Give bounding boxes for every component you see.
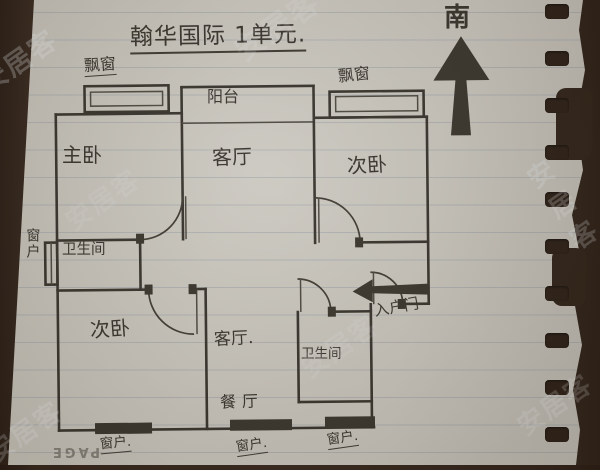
wall-bath2-left (298, 312, 299, 402)
wall-bedroom2-south (360, 242, 428, 243)
window-bottom-1 (95, 423, 152, 435)
bay-window-right (330, 91, 424, 118)
label-second-bedroom-top: 次卧 (346, 153, 387, 177)
door-arc-bedroom2 (315, 197, 360, 242)
wall-bath-right (140, 240, 141, 290)
label-bathroom-bottom: 卫生间 (301, 347, 342, 362)
wall-divider-right (313, 86, 315, 243)
bay-window-left-inner (91, 91, 163, 106)
wall-bedroom3-east (206, 289, 207, 429)
label-bay-window-left: 飘窗 (83, 55, 116, 77)
door-arc-bedroom3 (149, 289, 194, 334)
label-second-bedroom-bottom: 次卧 (89, 317, 130, 342)
door-jamb (145, 285, 153, 295)
bay-window-right-inner (336, 96, 418, 112)
label-window-bottom-1: 窗户. (99, 435, 132, 455)
wall-balcony-top (181, 86, 313, 87)
wall-divider-master (181, 87, 183, 239)
door-arc-bath2 (297, 279, 330, 312)
door-jamb (355, 237, 363, 247)
door-jamb (328, 307, 336, 317)
door-jamb (136, 234, 144, 244)
window-bottom-3 (325, 416, 375, 428)
label-bay-window-right: 飘窗 (337, 64, 371, 85)
window-bottom-2 (230, 419, 292, 431)
notebook-photo: { "page": { "title": "翰华国际 1单元.", "compa… (0, 0, 600, 465)
label-dining-room: 餐厅 (220, 392, 265, 411)
wall-bath-top (57, 240, 140, 241)
label-living-room-top: 客厅 (212, 145, 253, 168)
page-print-text: PAGE (50, 444, 100, 459)
label-master-bedroom: 主卧 (62, 144, 102, 166)
wall-top-left (56, 113, 182, 114)
label-balcony: 阳台 (207, 88, 239, 106)
wall-hall-south-a (58, 290, 149, 291)
compass-south-label: 南 (444, 4, 470, 33)
wall-bath2-bottom (299, 401, 372, 402)
wall-right (427, 117, 429, 304)
door-jamb (189, 284, 197, 294)
wall-right-lower (371, 304, 372, 427)
bay-window-left (84, 85, 168, 112)
sketch-title: 翰华国际 1单元. (130, 22, 307, 54)
south-arrow-icon (433, 36, 490, 136)
door-arc-master (140, 196, 183, 239)
balcony-inner-line (182, 122, 314, 123)
label-window-left: 窗户 (24, 228, 39, 260)
label-living-room-bottom: 客厅. (214, 329, 254, 350)
label-bathroom-top: 卫生间 (62, 243, 106, 259)
